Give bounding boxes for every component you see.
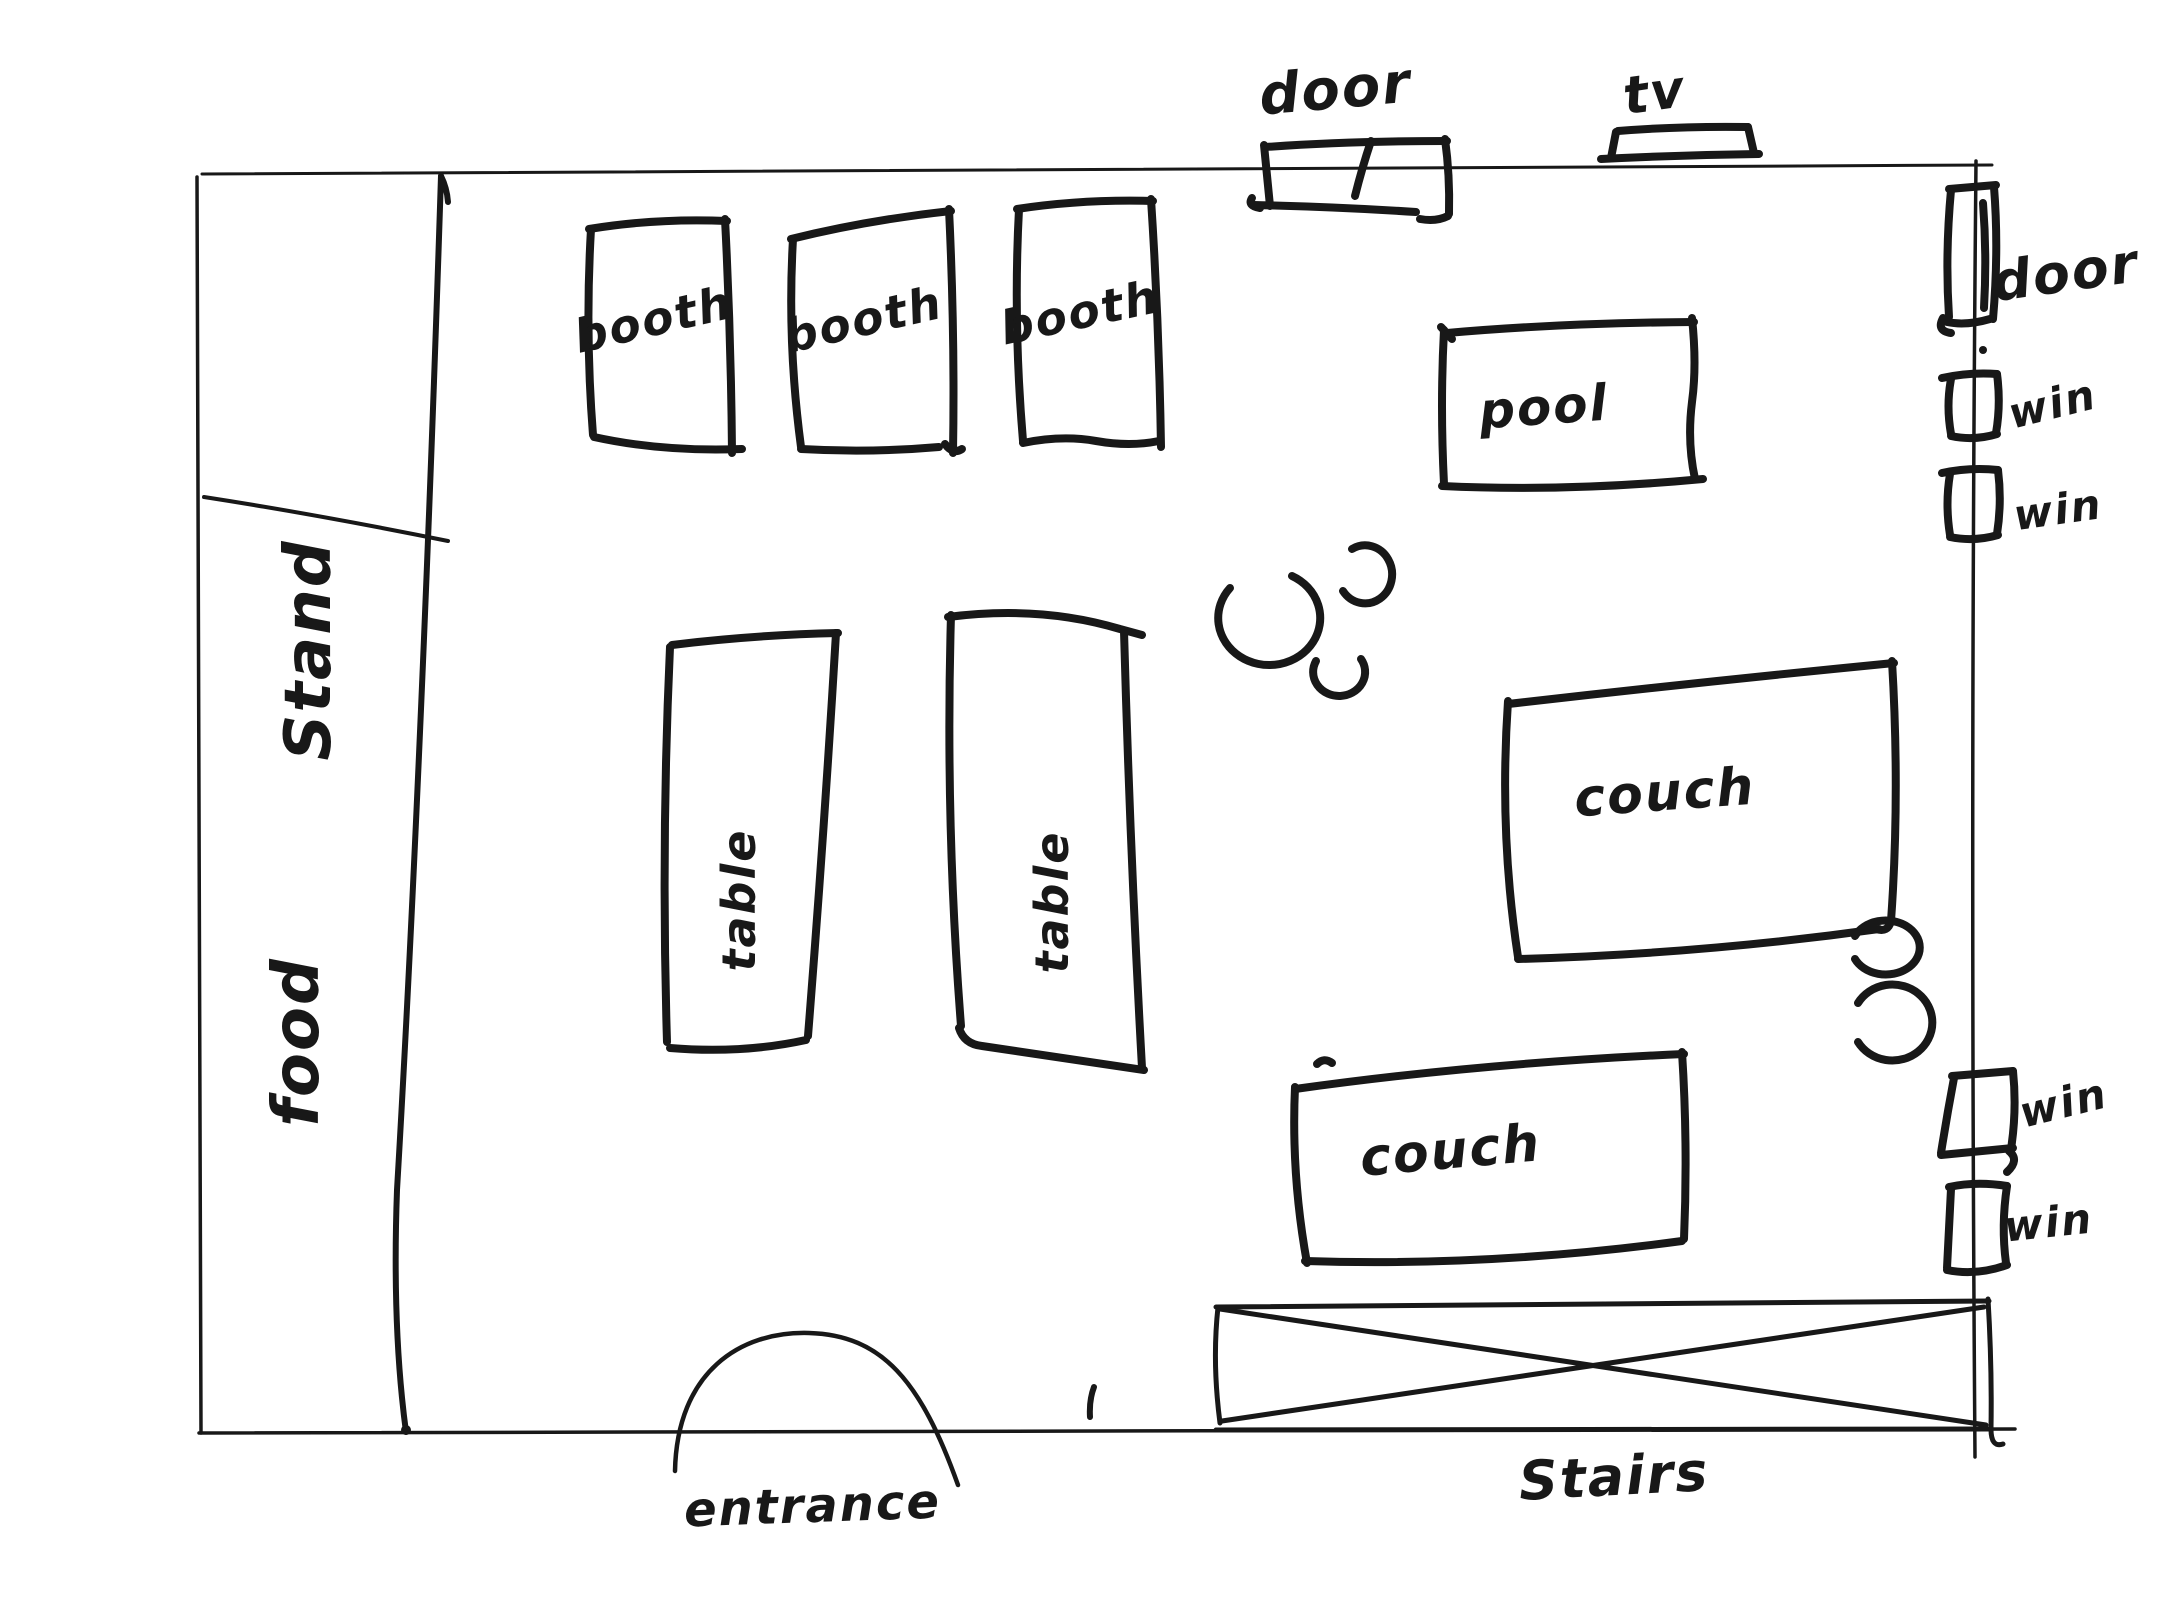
diagonal-partition-wall — [204, 497, 448, 541]
round-tables-center — [1218, 545, 1392, 696]
right-door-label: door — [1988, 231, 2144, 314]
booth-1-label: booth — [569, 275, 738, 364]
window-4 — [1947, 1184, 2007, 1272]
top-wall — [202, 165, 1992, 174]
window-3-label: win — [2014, 1068, 2112, 1137]
round-table-small-1 — [1343, 545, 1392, 603]
right-door-leaf-line — [1983, 203, 1985, 308]
entrance-label: entrance — [683, 1474, 942, 1539]
floorplan-sketch-canvas: door tv door win win win — [0, 0, 2160, 1620]
right-door — [1941, 185, 1997, 333]
wall-tick-mark — [1090, 1387, 1094, 1417]
interior-partition-wall — [396, 176, 441, 1432]
stairs-label: Stairs — [1517, 1440, 1710, 1513]
stand-area-label: Stand — [272, 539, 346, 760]
entrance-arc — [675, 1333, 958, 1485]
stairs — [1215, 1299, 2003, 1445]
round-tables-right — [1855, 921, 1932, 1061]
window-3 — [1941, 1071, 2015, 1172]
window-2-label: win — [2010, 479, 2105, 540]
partition-end-dot — [401, 1425, 411, 1435]
window-4-label: win — [2002, 1194, 2096, 1252]
window-1-label: win — [2003, 369, 2101, 438]
food-area-label: food — [260, 957, 334, 1127]
floorplan-sketch-page: door tv door win win win — [0, 0, 2160, 1620]
couch-1-label: couch — [1572, 757, 1757, 830]
window-2 — [1942, 469, 2000, 539]
top-door-label: door — [1257, 50, 1416, 128]
table-2-label: table — [1025, 831, 1079, 974]
tv-unit — [1601, 127, 1759, 159]
wall-dot — [1979, 346, 1987, 354]
couch-2-label: couch — [1358, 1113, 1544, 1189]
booth-2-label: booth — [779, 275, 948, 364]
top-door — [1251, 139, 1450, 220]
left-wall — [197, 177, 201, 1433]
tv-label: tv — [1619, 59, 1690, 127]
right-wall — [1973, 161, 1976, 1457]
window-1 — [1942, 374, 1999, 439]
round-table-large — [1218, 576, 1320, 665]
table-1-label: table — [712, 829, 766, 972]
side-table-2 — [1858, 985, 1932, 1061]
pool-table-label: pool — [1476, 374, 1610, 441]
round-table-small-2 — [1313, 659, 1365, 696]
